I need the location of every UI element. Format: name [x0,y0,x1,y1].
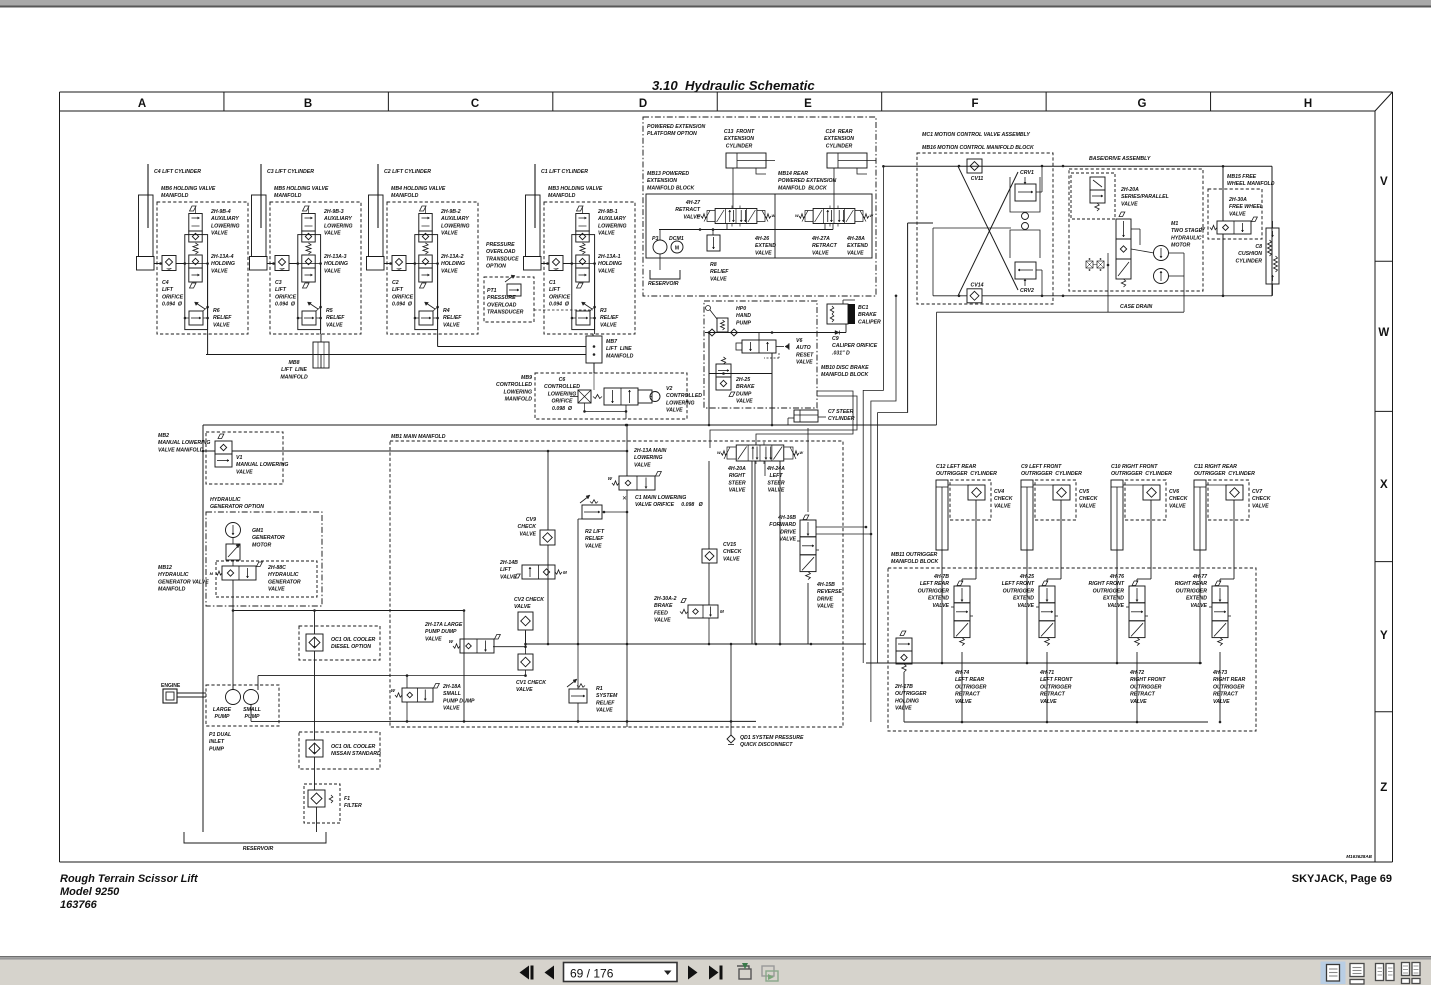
svg-text:W: W [870,214,874,218]
svg-text:OC1 OIL COOLERDIESEL OPTION: OC1 OIL COOLERDIESEL OPTION [331,637,376,650]
svg-text:4H-24ALEFTSTEERVALVE: 4H-24ALEFTSTEERVALVE [766,466,785,494]
svg-text:H: H [1304,98,1312,110]
svg-text:CASE DRAIN: CASE DRAIN [1120,304,1153,310]
svg-text:W: W [795,214,799,218]
svg-text:C13 FRONTEXTENSIONCYLINDER: C13 FRONTEXTENSIONCYLINDER [724,129,755,149]
svg-text:3.10 Hydraulic Schematic: 3.10 Hydraulic Schematic [652,78,815,93]
svg-text:V: V [1380,176,1388,188]
svg-text:CV11: CV11 [971,176,984,182]
svg-text:Rough Terrain Scissor Lift: Rough Terrain Scissor Lift [60,873,199,885]
svg-text:F: F [971,98,978,110]
svg-text:W: W [1378,327,1389,339]
svg-text:LARGEPUMP: LARGEPUMP [213,707,232,720]
svg-text:CRV1: CRV1 [1020,170,1034,176]
svg-text:B: B [304,98,312,110]
svg-text:BASE/DRIVE ASSEMBLY: BASE/DRIVE ASSEMBLY [1089,156,1151,162]
svg-text:A: A [138,98,146,110]
svg-text:CRV2: CRV2 [1020,288,1034,294]
svg-text:MB11 OUTRIGGERMANIFOLD BLOCK: MB11 OUTRIGGERMANIFOLD BLOCK [891,552,940,565]
svg-text:CV14: CV14 [971,283,984,289]
svg-text:M163628AB: M163628AB [1346,854,1372,859]
svg-text:W: W [717,451,721,455]
svg-text:MB16 MOTION CONTROL MANIFOLD B: MB16 MOTION CONTROL MANIFOLD BLOCK [922,145,1035,151]
svg-text:C3 LIFT CYLINDER: C3 LIFT CYLINDER [267,169,314,175]
svg-text:RESERVOIR: RESERVOIR [648,281,679,287]
svg-text:M: M [675,246,679,252]
svg-text:Y: Y [1380,630,1388,642]
svg-text:✕: ✕ [622,496,627,502]
svg-text:4H-20ARIGHTSTEERVALVE: 4H-20ARIGHTSTEERVALVE [727,466,746,494]
svg-text:P3: P3 [652,236,658,242]
svg-text:SMALLPUMP: SMALLPUMP [243,707,261,720]
svg-text:POWERED EXTENSIONPLATFORM OPTI: POWERED EXTENSIONPLATFORM OPTION [647,124,705,137]
svg-text:RESERVOIR: RESERVOIR [243,846,274,852]
svg-text:E: E [804,98,812,110]
svg-text:W: W [772,214,776,218]
svg-text:C4 LIFT CYLINDER: C4 LIFT CYLINDER [154,169,201,175]
svg-text:X: X [1380,479,1388,491]
svg-text:G: G [1138,98,1147,110]
svg-text:OC1 OIL COOLERNISSAN STANDARD: OC1 OIL COOLERNISSAN STANDARD [331,744,381,757]
svg-text:D: D [639,98,647,110]
svg-text:C: C [471,98,479,110]
svg-text:MC1 MOTION CONTROL VALVE ASSEM: MC1 MOTION CONTROL VALVE ASSEMBLY [922,132,1030,138]
svg-text:SKYJACK, Page 69: SKYJACK, Page 69 [1292,873,1392,885]
svg-text:C7 STEERCYLINDER: C7 STEERCYLINDER [828,409,855,422]
svg-text:Z: Z [1380,782,1387,794]
svg-text:C14 REAREXTENSIONCYLINDER: C14 REAREXTENSIONCYLINDER [824,129,854,149]
svg-text:MB1 MAIN MANIFOLD: MB1 MAIN MANIFOLD [391,434,446,440]
svg-text:69 / 176: 69 / 176 [570,967,614,981]
svg-text:C2 LIFT CYLINDER: C2 LIFT CYLINDER [384,169,431,175]
svg-text:ENGINE: ENGINE [161,683,181,689]
svg-text:163766: 163766 [60,899,98,911]
svg-text:Model 9250: Model 9250 [60,886,120,898]
svg-text:M: M [563,570,567,575]
svg-text:W: W [800,451,804,455]
svg-text:MB10 DISC BRAKEMANIFOLD BLOCK: MB10 DISC BRAKEMANIFOLD BLOCK [821,365,870,378]
svg-text:M: M [720,609,724,614]
svg-text:C1 LIFT CYLINDER: C1 LIFT CYLINDER [541,169,588,175]
